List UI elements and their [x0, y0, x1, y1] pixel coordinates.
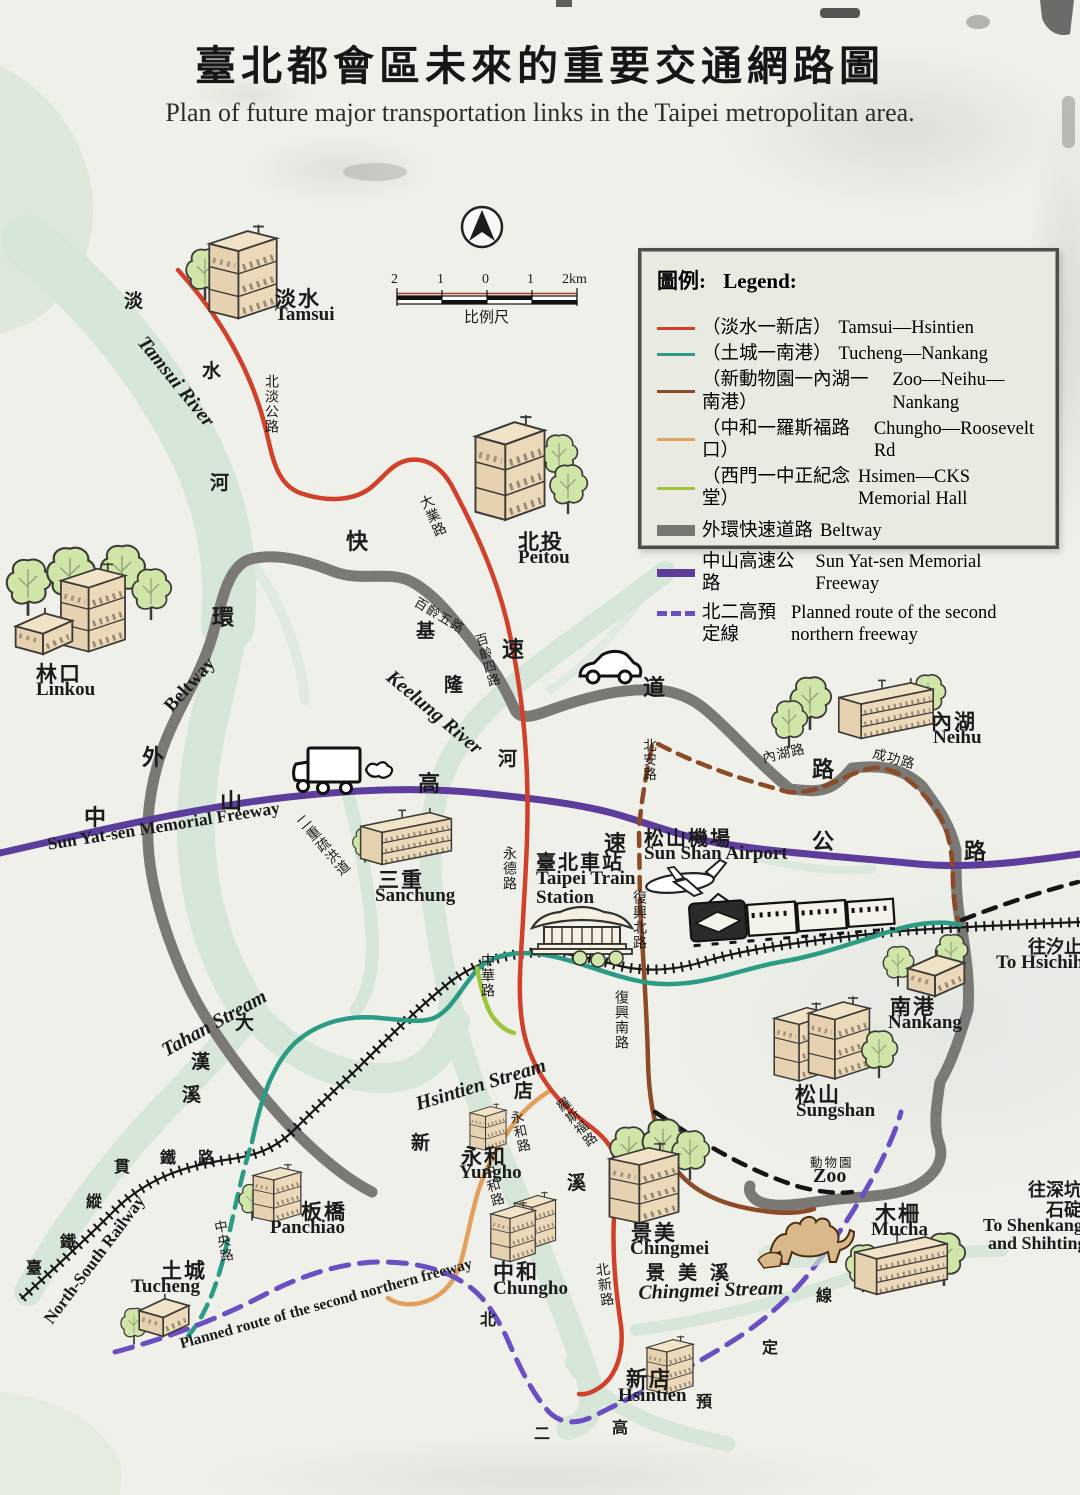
legend-zh: （淡水一新店）	[702, 317, 832, 339]
beltway-char: 環	[212, 600, 234, 632]
legend-en: Tamsui—Hsintien	[839, 317, 974, 339]
chungho-building	[491, 1202, 535, 1262]
scale-tick: 0	[482, 272, 489, 288]
beltway-char: 快	[346, 524, 368, 556]
legend-item-freeway: 中山高速公路 Sun Yat-sen Memorial Freeway	[657, 551, 1040, 595]
place-nankang-en: Nankang	[888, 1012, 962, 1034]
page-title: 臺北都會區未來的重要交通網路圖	[0, 32, 1080, 92]
legend-zh: （土城一南港）	[702, 343, 832, 365]
road-fuxing-north: 復興北路	[628, 890, 648, 950]
railway-char: 路	[198, 1144, 214, 1168]
planned-freeway-char: 預	[696, 1388, 712, 1412]
railway-char: 貫	[114, 1153, 130, 1177]
place-zoo-en: Zoo	[813, 1165, 846, 1188]
place-hsintien-en: Hsintien	[618, 1385, 687, 1407]
place-neihu-en: Neihu	[933, 727, 982, 749]
legend-item-planned-freeway: 北二高預定線 Planned route of the second north…	[657, 602, 1040, 646]
airplane-icon	[645, 860, 726, 896]
planned-freeway-char: 二	[534, 1420, 550, 1444]
tahan-stream-char: 溪	[182, 1080, 201, 1107]
legend-en: Planned route of the second northern fre…	[791, 602, 1040, 646]
legend-en: Hsimen—CKS Memorial Hall	[858, 466, 1040, 510]
freeway-char: 高	[418, 766, 440, 798]
map-page: 臺北都會區未來的重要交通網路圖 Plan of future major tra…	[0, 0, 1080, 1495]
legend-item-chungho-roosevelt: （中和一羅斯福路口） Chungho—Roosevelt Rd	[657, 418, 1040, 462]
railway-char: 臺	[26, 1254, 42, 1278]
legend-item-beltway: 外環快速道路 Beltway	[657, 520, 1040, 542]
place-linkou-en: Linkou	[36, 679, 95, 701]
legend: 圖例: Legend: （淡水一新店） Tamsui—Hsintien （土城一…	[638, 248, 1059, 549]
beltway-char: 路	[812, 752, 834, 784]
keelung-river-char: 隆	[444, 670, 463, 697]
black-dashed-hsichih	[962, 882, 1078, 920]
lightgreen-line-swatch	[657, 487, 695, 490]
peitou-building	[475, 415, 544, 520]
tamsui-river-char: 河	[210, 468, 229, 495]
legend-title-zh: 圖例:	[657, 269, 706, 293]
place-chungho-en: Chungho	[493, 1278, 568, 1300]
brown-line-swatch	[657, 390, 695, 393]
dest-hsichih-en: To Hsichih	[996, 952, 1080, 974]
neihu-building	[839, 678, 933, 738]
keelung-river-char: 河	[498, 744, 517, 771]
legend-zh: 外環快速道路	[702, 520, 813, 542]
place-sungshan-en: Sungshan	[796, 1100, 875, 1122]
legend-title-en: Legend:	[723, 269, 797, 293]
red-line-swatch	[657, 327, 695, 330]
planned-freeway-char: 線	[816, 1282, 832, 1306]
scale-tick: 1	[527, 272, 534, 288]
legend-item-hsimen-cks: （西門一中正紀念堂） Hsimen—CKS Memorial Hall	[657, 466, 1040, 510]
freeway-char: 路	[964, 834, 986, 866]
road-chunghwa: 中華路	[476, 953, 496, 998]
legend-item-tucheng-nankang: （土城一南港） Tucheng—Nankang	[657, 343, 1040, 365]
legend-en: Sun Yat-sen Memorial Freeway	[815, 551, 1040, 595]
place-mucha-en: Mucha	[871, 1219, 928, 1241]
north-arrow-icon	[462, 207, 502, 247]
erchong-floodway	[342, 772, 372, 1010]
legend-item-tamsui-hsintien: （淡水一新店） Tamsui—Hsintien	[657, 317, 1040, 339]
legend-item-zoo-neihu-nankang: （新動物園一內湖一南港） Zoo—Neihu—Nankang	[657, 369, 1040, 413]
place-sanchung-en: Sanchung	[375, 885, 455, 907]
beltway-char: 速	[502, 632, 524, 664]
place-panchiao-en: Panchiao	[270, 1217, 345, 1239]
sungshan-building-2	[809, 996, 870, 1078]
truck-icon	[294, 748, 392, 794]
railway-char: 縱	[86, 1188, 102, 1212]
legend-zh: （西門一中正紀念堂）	[702, 466, 851, 510]
road-peitan: 北淡公路	[260, 374, 280, 434]
legend-en: Chungho—Roosevelt Rd	[874, 418, 1040, 462]
legend-zh: （中和一羅斯福路口）	[702, 418, 867, 462]
tree-icon	[7, 560, 51, 616]
planned-freeway-char: 定	[762, 1334, 778, 1358]
legend-en: Tucheng—Nankang	[839, 343, 988, 365]
road-yungte: 永德路	[498, 846, 518, 891]
scale-bar	[397, 288, 577, 306]
legend-zh: 中山高速公路	[702, 551, 808, 595]
road-fuxing-south: 復興南路	[610, 990, 630, 1050]
place-peitou-en: Peitou	[518, 547, 570, 569]
place-taipei-station-en2: Station	[536, 887, 594, 909]
tahan-stream-char: 漢	[191, 1047, 210, 1074]
dest-shenkang-en2: and Shihting	[988, 1233, 1080, 1254]
freeway-char: 公	[812, 824, 834, 856]
hsintien-stream-char: 新	[411, 1128, 430, 1155]
legend-en: Zoo—Neihu—Nankang	[892, 369, 1040, 413]
planned-freeway-char: 北	[480, 1306, 496, 1330]
camel-icon	[758, 1217, 854, 1268]
place-sunshan-airport-en: Sun Shan Airport	[644, 843, 788, 865]
legend-en: Beltway	[820, 520, 882, 542]
tree-icon	[132, 569, 171, 620]
legend-zh: （新動物園一內湖一南港）	[702, 369, 885, 413]
scale-tick: 2km	[562, 272, 587, 288]
tamsui-river-char: 水	[202, 356, 221, 383]
scale-tick: 2	[391, 272, 398, 288]
freeway-char: 速	[604, 826, 626, 858]
place-chingmei-en: Chingmei	[630, 1238, 709, 1260]
planned-freeway-swatch	[657, 611, 695, 616]
place-tucheng-en: Tucheng	[131, 1276, 200, 1298]
beltway-swatch	[657, 525, 695, 536]
tamsui-building	[209, 225, 276, 319]
train-icon	[688, 882, 895, 946]
road-peian: 北安路	[638, 738, 658, 782]
hsintien-stream-char: 溪	[567, 1168, 586, 1195]
place-tamsui-en: Tamsui	[275, 304, 335, 326]
teal-line-swatch	[657, 353, 695, 356]
freeway-swatch	[657, 569, 695, 577]
railway-char: 鐵	[160, 1144, 176, 1168]
header: 臺北都會區未來的重要交通網路圖 Plan of future major tra…	[0, 32, 1080, 128]
orange-line-swatch	[657, 438, 695, 441]
panchiao-building	[253, 1164, 301, 1222]
beltway-char: 外	[142, 740, 164, 772]
taipei-station-building	[532, 907, 632, 967]
legend-title: 圖例: Legend:	[657, 265, 1040, 295]
beltway-char: 道	[643, 670, 665, 702]
mucha-building	[855, 1232, 948, 1294]
tamsui-river-char: 淡	[124, 286, 143, 313]
planned-freeway-char: 高	[612, 1414, 628, 1438]
scale-caption: 比例尺	[464, 306, 509, 327]
railway-char: 鐵	[60, 1228, 76, 1252]
tree-icon	[862, 1031, 898, 1078]
scale-tick: 1	[437, 272, 444, 288]
river-streak-2	[250, 560, 305, 700]
legend-zh: 北二高預定線	[702, 602, 784, 646]
tree-icon	[550, 465, 587, 514]
page-subtitle: Plan of future major transportation link…	[0, 98, 1080, 128]
